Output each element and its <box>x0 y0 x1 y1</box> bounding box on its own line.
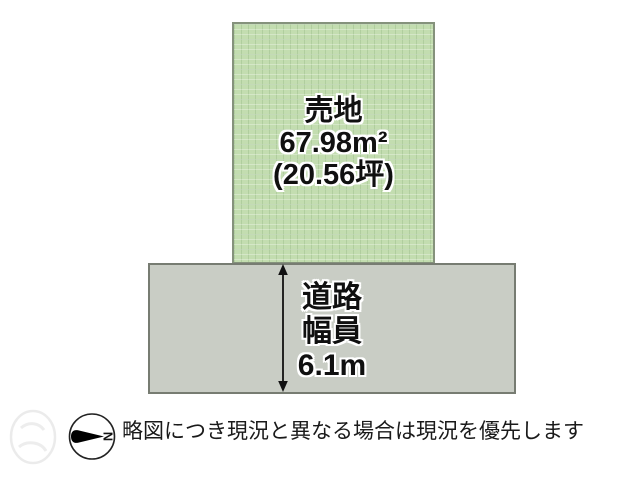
compass-north-icon: N <box>66 412 118 461</box>
road-label-line2: 幅員 <box>150 315 514 349</box>
site-plan-canvas: 売地 67.98m² (20.56坪) 道路 幅員 6.1m N 略図につき現況… <box>0 0 640 480</box>
lot-area-m2: 67.98m² <box>234 127 433 159</box>
road-label-line1: 道路 <box>150 281 514 315</box>
road-label: 道路 幅員 6.1m <box>150 281 514 383</box>
compass-north-label: N <box>101 432 116 441</box>
road-strip: 道路 幅員 6.1m <box>148 263 516 394</box>
watermark <box>6 406 64 470</box>
lot-title: 売地 <box>234 95 433 127</box>
lot-label: 売地 67.98m² (20.56坪) <box>234 95 433 191</box>
road-width-arrow-icon <box>276 264 290 392</box>
disclaimer-note: 略図につき現況と異なる場合は現況を優先します <box>122 419 584 445</box>
road-width-value: 6.1m <box>150 349 514 383</box>
lot-area-tsubo: (20.56坪) <box>234 159 433 191</box>
lot-parcel: 売地 67.98m² (20.56坪) <box>232 22 435 264</box>
